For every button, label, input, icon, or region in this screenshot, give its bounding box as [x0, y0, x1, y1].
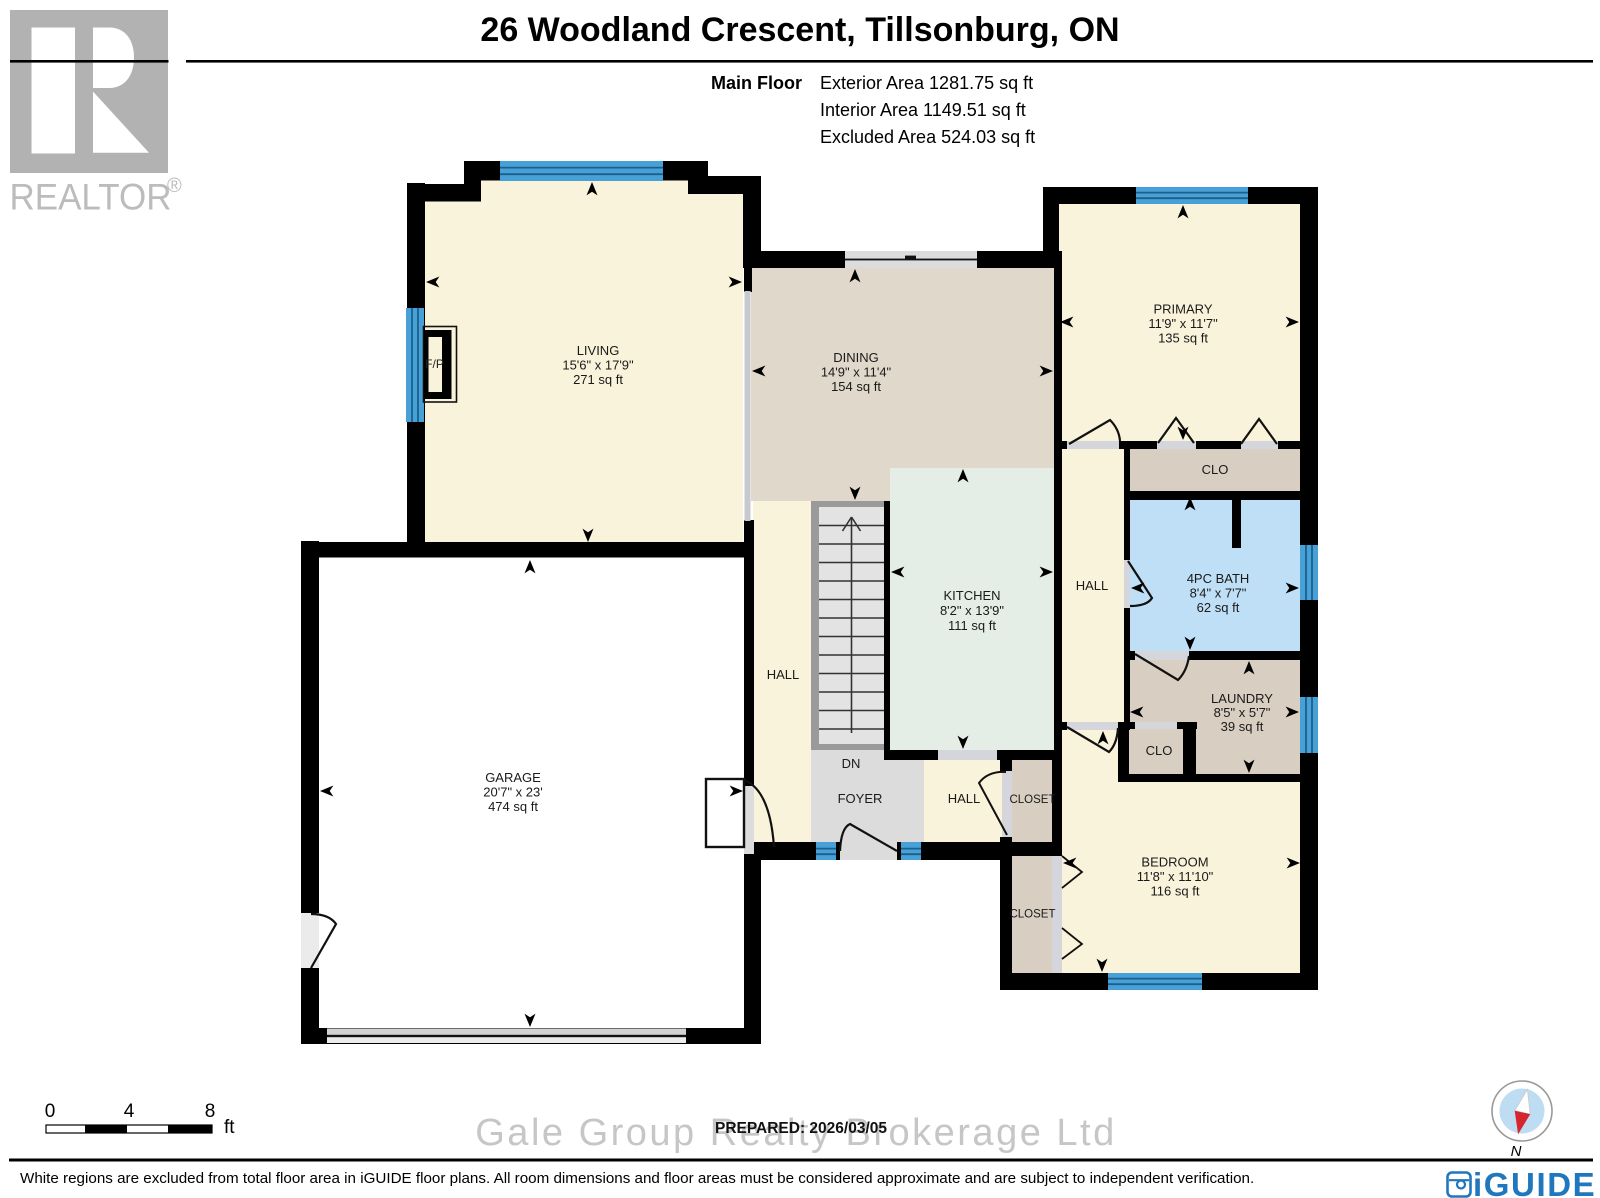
svg-text:Exterior Area 1281.75 sq ft: Exterior Area 1281.75 sq ft: [820, 73, 1033, 93]
svg-text:REALTOR: REALTOR: [10, 177, 172, 218]
svg-text:CLO: CLO: [1146, 743, 1173, 758]
svg-text:CLO: CLO: [1202, 462, 1229, 477]
svg-text:CLOSET: CLOSET: [1009, 909, 1055, 921]
svg-text:KITCHEN: KITCHEN: [943, 588, 1000, 603]
svg-text:154 sq ft: 154 sq ft: [831, 379, 881, 394]
svg-text:Main Floor: Main Floor: [711, 73, 802, 93]
svg-text:CLOSET: CLOSET: [1009, 794, 1055, 806]
svg-text:11'9" x 11'7": 11'9" x 11'7": [1148, 316, 1218, 331]
svg-text:116 sq ft: 116 sq ft: [1151, 884, 1200, 899]
svg-text:62 sq ft: 62 sq ft: [1197, 600, 1240, 615]
svg-text:iGUIDE: iGUIDE: [1473, 1166, 1596, 1198]
svg-text:HALL: HALL: [1076, 578, 1109, 593]
svg-text:PRIMARY: PRIMARY: [1154, 302, 1213, 317]
svg-text:14'9" x 11'4": 14'9" x 11'4": [821, 365, 892, 380]
svg-text:Excluded Area 524.03 sq ft: Excluded Area 524.03 sq ft: [820, 127, 1035, 147]
svg-text:111 sq ft: 111 sq ft: [948, 618, 996, 633]
svg-text:GARAGE: GARAGE: [485, 770, 541, 785]
svg-text:474 sq ft: 474 sq ft: [488, 799, 538, 814]
svg-text:8'4" x 7'7": 8'4" x 7'7": [1190, 586, 1247, 601]
svg-text:20'7" x 23': 20'7" x 23': [483, 785, 542, 800]
svg-text:LIVING: LIVING: [577, 343, 620, 358]
svg-text:26 Woodland Crescent, Tillsonb: 26 Woodland Crescent, Tillsonburg, ON: [480, 11, 1119, 49]
svg-text:PREPARED: 2026/03/05: PREPARED: 2026/03/05: [715, 1120, 887, 1137]
svg-text:8'5" x 5'7": 8'5" x 5'7": [1214, 705, 1271, 720]
svg-text:8'2" x 13'9": 8'2" x 13'9": [940, 603, 1004, 618]
svg-text:0: 0: [45, 1101, 56, 1122]
svg-text:F/P: F/P: [425, 357, 444, 371]
svg-text:15'6" x 17'9": 15'6" x 17'9": [562, 358, 634, 373]
svg-text:ft: ft: [224, 1117, 235, 1138]
svg-text:HALL: HALL: [767, 667, 800, 682]
svg-text:Interior Area 1149.51 sq ft: Interior Area 1149.51 sq ft: [820, 100, 1026, 120]
svg-text:®: ®: [167, 175, 182, 197]
svg-text:BEDROOM: BEDROOM: [1141, 855, 1208, 870]
svg-text:271 sq ft: 271 sq ft: [573, 372, 623, 387]
svg-text:N: N: [1511, 1143, 1522, 1160]
svg-text:135 sq ft: 135 sq ft: [1158, 331, 1208, 346]
svg-text:White regions are excluded fro: White regions are excluded from total fl…: [20, 1170, 1254, 1187]
svg-text:DINING: DINING: [833, 350, 879, 365]
svg-text:8: 8: [205, 1101, 216, 1122]
svg-text:LAUNDRY: LAUNDRY: [1211, 691, 1273, 706]
svg-text:DN: DN: [842, 756, 861, 771]
svg-text:HALL: HALL: [948, 791, 981, 806]
svg-text:FOYER: FOYER: [838, 791, 883, 806]
svg-text:4: 4: [124, 1101, 135, 1122]
svg-text:4PC BATH: 4PC BATH: [1187, 571, 1250, 586]
svg-text:39 sq ft: 39 sq ft: [1221, 719, 1264, 734]
svg-text:11'8" x 11'10": 11'8" x 11'10": [1137, 869, 1214, 884]
